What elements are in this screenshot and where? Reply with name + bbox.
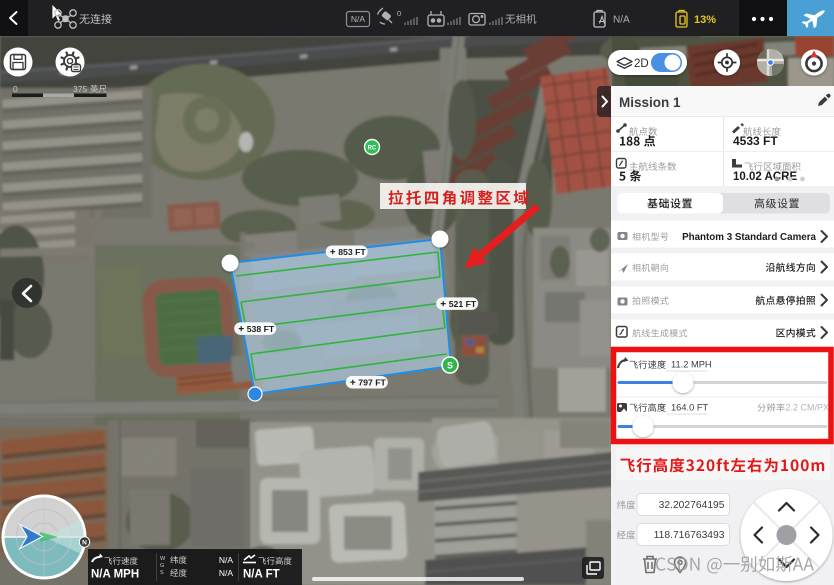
svg-text:S: S (160, 570, 164, 576)
svg-text:797 FT: 797 FT (358, 377, 386, 387)
svg-text:N/A FT: N/A FT (243, 569, 280, 581)
svg-text:N/A MPH: N/A MPH (91, 569, 139, 581)
svg-text:538 FT: 538 FT (247, 324, 275, 334)
svg-text:N/A: N/A (219, 568, 234, 578)
svg-text:375: 375 (73, 84, 87, 94)
svg-text:13%: 13% (694, 14, 716, 26)
svg-text:G: G (160, 563, 164, 569)
svg-text:S: S (447, 360, 453, 370)
svg-text:0: 0 (397, 9, 401, 18)
svg-text:Phantom 3 Standard Camera: Phantom 3 Standard Camera (682, 232, 816, 243)
svg-text:4533 FT: 4533 FT (733, 134, 778, 148)
svg-text:11.2 MPH: 11.2 MPH (671, 360, 712, 370)
svg-text:0: 0 (13, 84, 18, 94)
svg-text:Mission 1: Mission 1 (619, 95, 681, 110)
svg-text:2.2 CM/PX: 2.2 CM/PX (785, 403, 829, 413)
svg-text:521 FT: 521 FT (449, 299, 477, 309)
svg-text:N/A: N/A (351, 14, 366, 24)
svg-text:N/A: N/A (613, 15, 630, 26)
svg-text:10.02 ACRE: 10.02 ACRE (733, 171, 797, 183)
svg-text:164.0 FT: 164.0 FT (671, 403, 709, 413)
svg-text:32.202764195: 32.202764195 (659, 500, 725, 511)
svg-text:2D: 2D (634, 58, 649, 70)
svg-text:W: W (160, 556, 166, 562)
svg-text:RC: RC (368, 146, 377, 152)
svg-text:N/A: N/A (219, 555, 234, 565)
svg-text:853 FT: 853 FT (338, 247, 366, 257)
svg-text:118.716763493: 118.716763493 (654, 530, 725, 541)
svg-text:N: N (82, 540, 87, 547)
